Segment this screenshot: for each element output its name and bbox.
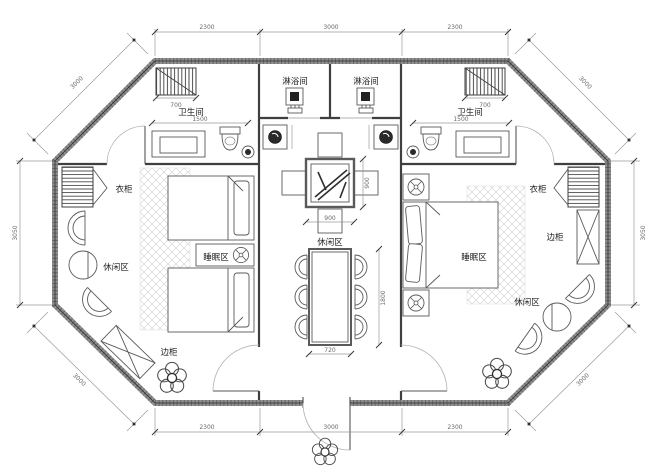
label-shower-right: 淋浴间 [353, 76, 379, 87]
nightstand-right-top [403, 174, 429, 200]
bed-left-1 [168, 176, 254, 240]
basin-left-bath [242, 146, 254, 158]
dim-top-right: 2300 [447, 24, 462, 31]
armchair-left-2 [69, 251, 97, 279]
floor-plan-sheet: 700 卫生间 1500 衣柜 睡眠区 休闲 [0, 0, 651, 473]
shower-drain-left [286, 88, 303, 113]
label-side-cabinet-left: 边柜 [160, 347, 178, 358]
dim-dining-height: 1800 [380, 290, 387, 305]
label-shower-left: 淋浴间 [282, 76, 308, 87]
dim-dining-width: 720 [324, 347, 336, 354]
label-leisure-left: 休闲区 [103, 262, 129, 273]
basin-right-bath [407, 146, 419, 158]
dim-side-left: 3050 [12, 225, 19, 240]
bed-left-2 [168, 268, 254, 332]
label-sleeping-left: 睡眠区 [203, 253, 229, 263]
vanity-right [456, 131, 509, 157]
bed-right [403, 202, 498, 288]
dim-bath-left: 1500 [192, 116, 207, 123]
label-wardrobe-left: 衣柜 [115, 184, 133, 195]
dim-table-width: 900 [324, 215, 336, 222]
dim-top-left: 2300 [199, 24, 214, 31]
label-wardrobe-right: 衣柜 [529, 184, 547, 195]
dim-bottom-left: 2300 [199, 424, 214, 431]
dim-top-center: 3000 [323, 24, 338, 31]
label-sleeping-right: 睡眠区 [461, 253, 487, 263]
dim-bottom-center: 3000 [323, 424, 338, 431]
vanity-left [152, 131, 205, 157]
label-leisure-center: 休闲区 [317, 237, 343, 248]
dim-side-right: 3050 [640, 225, 647, 240]
label-side-cabinet-right: 边柜 [546, 232, 564, 243]
label-leisure-right: 休闲区 [514, 297, 540, 308]
entrance-opening [303, 396, 350, 409]
dim-table-height: 900 [364, 177, 371, 189]
armchair-right-2 [543, 303, 571, 331]
side-cabinet-right [577, 210, 599, 264]
floor-plan-svg: 700 卫生间 1500 衣柜 睡眠区 休闲 [0, 0, 651, 473]
dim-bath-right: 1500 [453, 116, 468, 123]
shower-drain-right [357, 88, 374, 113]
dim-bottom-right: 2300 [447, 424, 462, 431]
nightstand-right-bottom [403, 290, 429, 316]
